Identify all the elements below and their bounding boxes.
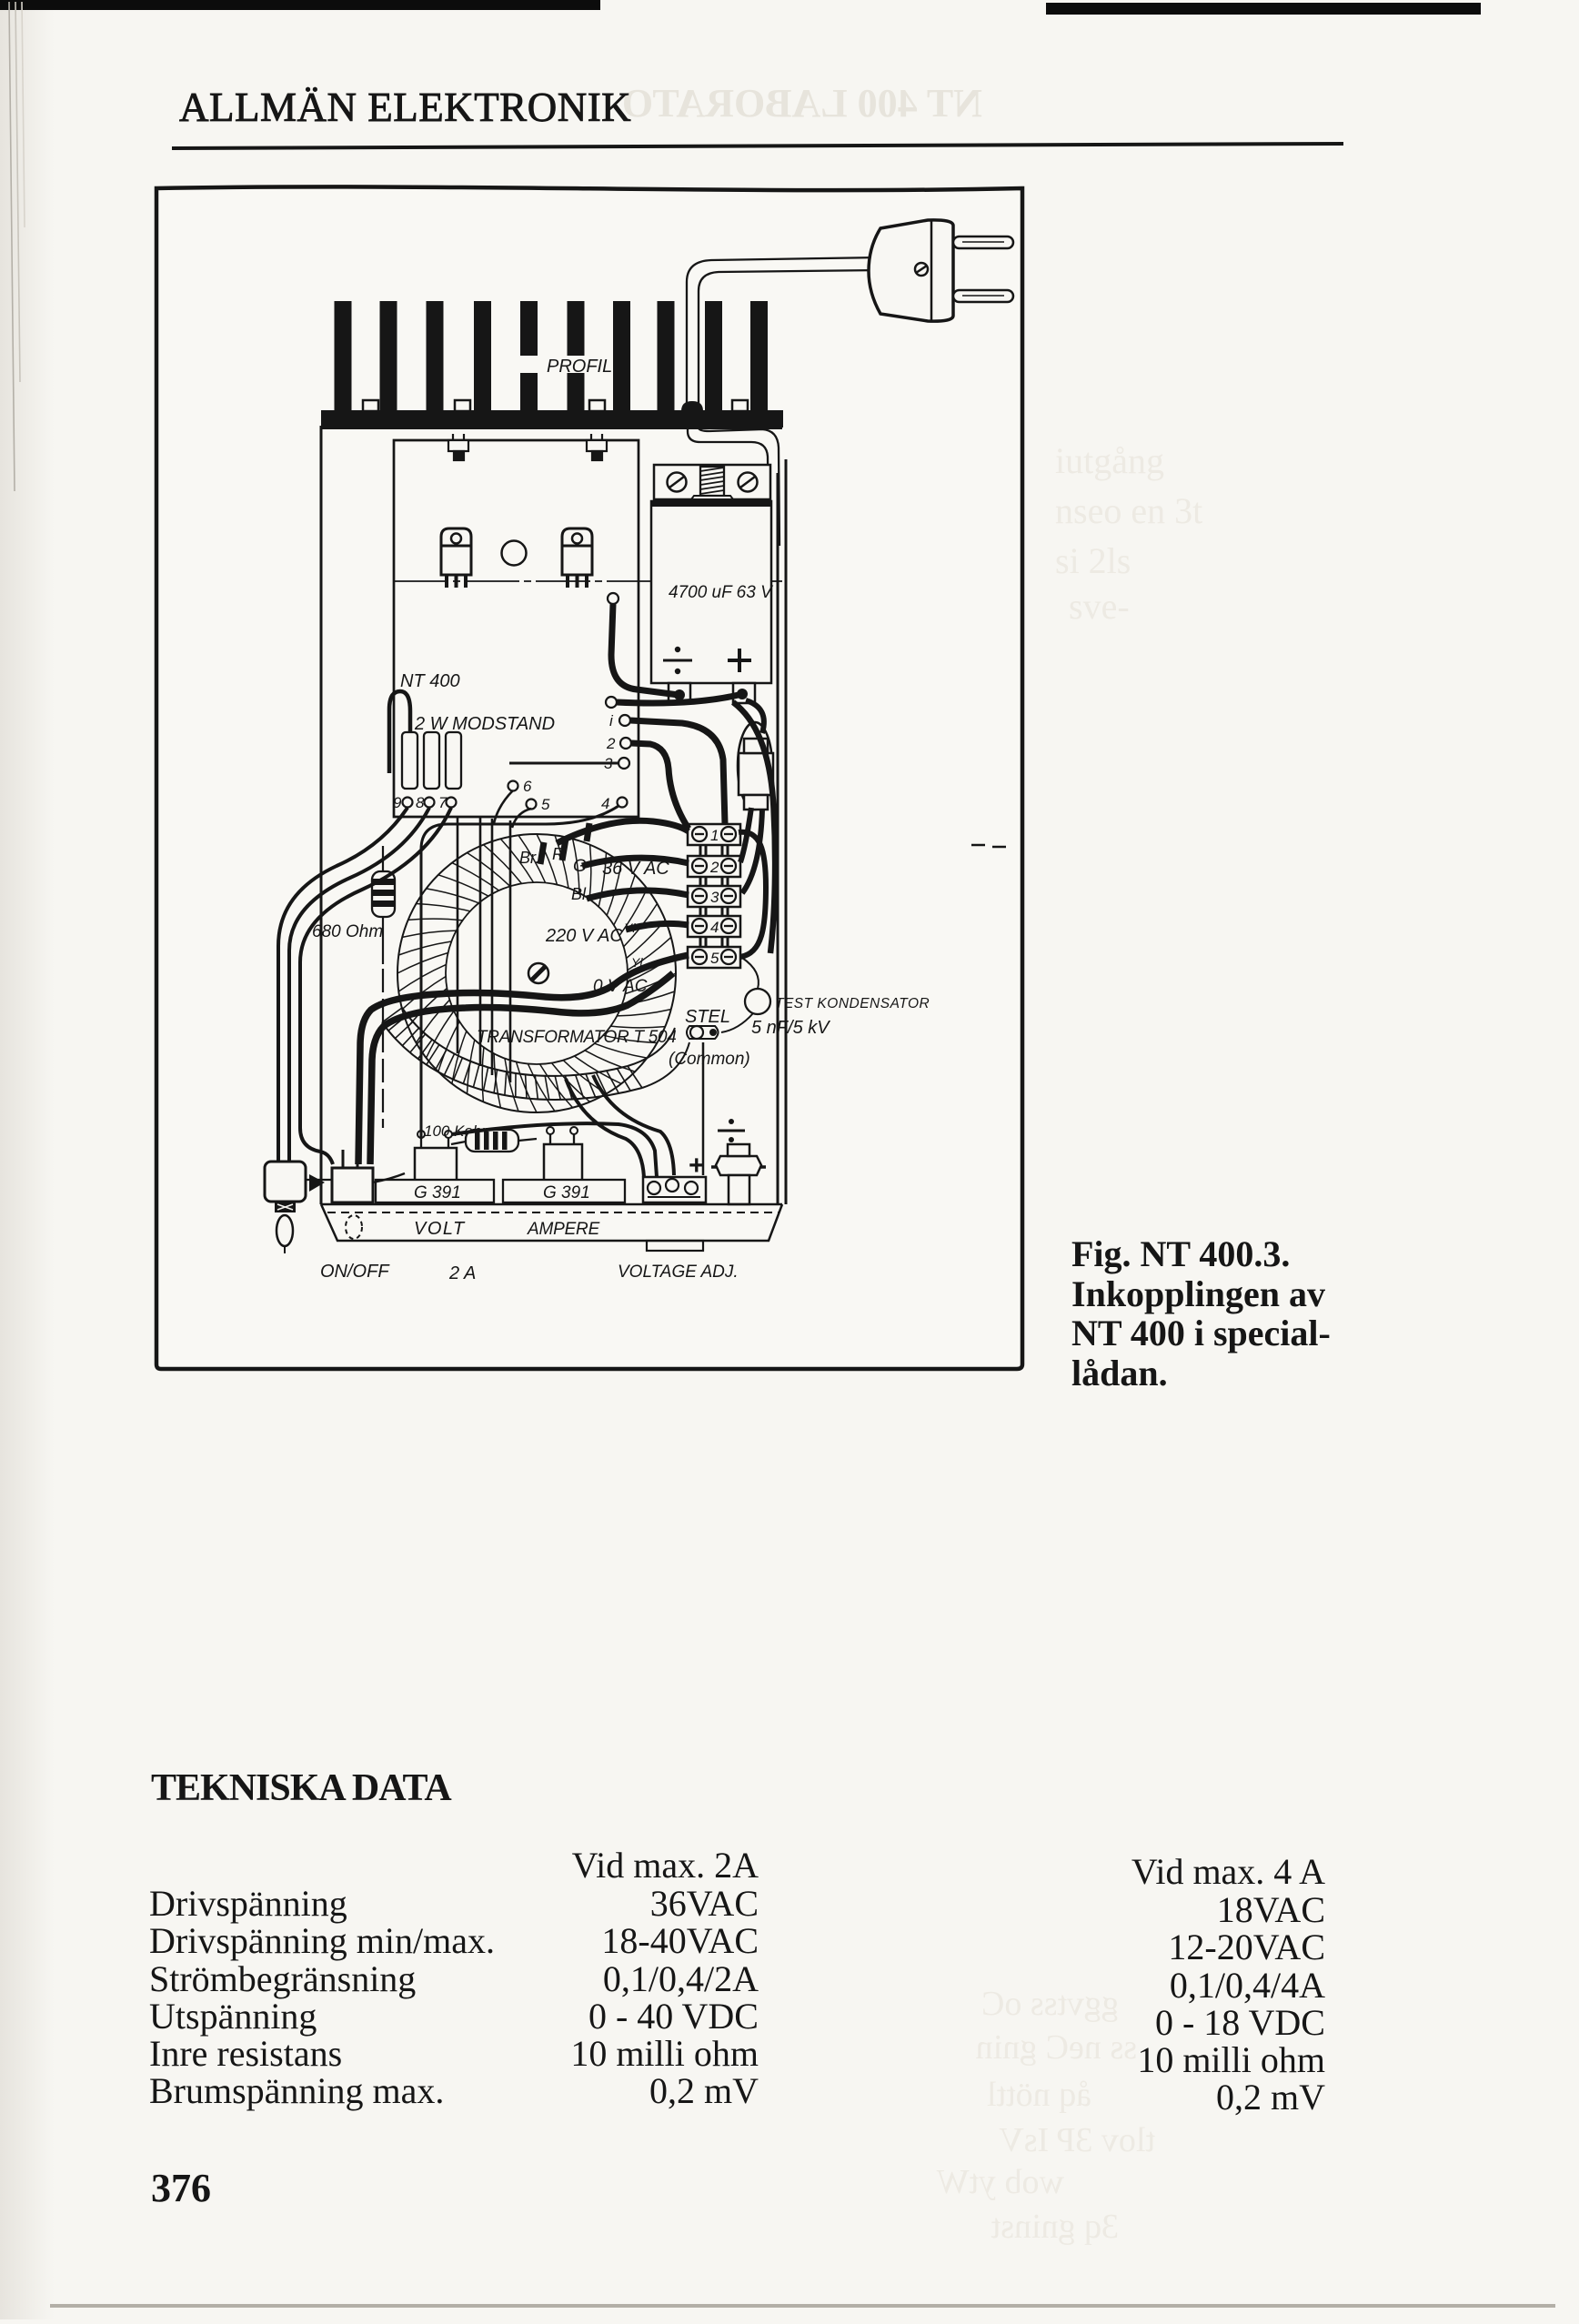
- svg-text:Br.: Br.: [519, 849, 539, 867]
- svg-text:18-40VAC: 18-40VAC: [601, 1920, 759, 1961]
- svg-text:G 391: G 391: [543, 1183, 590, 1202]
- svg-text:Strömbegränsning: Strömbegränsning: [149, 1958, 416, 1999]
- svg-text:iutgång: iutgång: [1055, 440, 1164, 481]
- svg-text:Vid max. 2A: Vid max. 2A: [572, 1845, 759, 1886]
- svg-text:Bl.: Bl.: [571, 885, 590, 903]
- svg-text:2: 2: [709, 859, 719, 876]
- svg-text:0,2 mV: 0,2 mV: [649, 2070, 759, 2111]
- svg-text:+: +: [689, 1151, 705, 1181]
- svg-text:(Common): (Common): [669, 1050, 750, 1069]
- svg-text:6: 6: [523, 778, 532, 795]
- svg-text:5 nF/5 kV: 5 nF/5 kV: [751, 1018, 830, 1038]
- svg-text:0,2 mV: 0,2 mV: [1216, 2077, 1325, 2118]
- svg-text:220 V AC: 220 V AC: [545, 926, 623, 946]
- svg-text:Vid max. 4 A: Vid max. 4 A: [1131, 1851, 1325, 1892]
- svg-text:376: 376: [151, 2166, 211, 2210]
- svg-text:2 W MODSTAND: 2 W MODSTAND: [414, 714, 555, 734]
- svg-text:G: G: [573, 857, 587, 876]
- svg-text:2: 2: [606, 735, 616, 752]
- svg-text:2 A: 2 A: [448, 1263, 476, 1283]
- svg-text:5: 5: [541, 796, 550, 813]
- svg-text:ss neC gnin: ss neC gnin: [976, 2028, 1137, 2067]
- svg-text:ON/OFF: ON/OFF: [320, 1262, 390, 1282]
- svg-text:3q gninst: 3q gninst: [991, 2208, 1119, 2246]
- svg-text:R: R: [552, 845, 564, 863]
- svg-text:lådan.: lådan.: [1071, 1353, 1168, 1393]
- svg-text:18VAC: 18VAC: [1217, 1889, 1325, 1930]
- svg-text:NT 400 i special-: NT 400 i special-: [1071, 1313, 1331, 1353]
- svg-text:ggvtss oC: ggvtss oC: [981, 1985, 1119, 2023]
- svg-text:VOLT: VOLT: [414, 1219, 466, 1239]
- svg-text:0 - 18 VDC: 0 - 18 VDC: [1155, 2002, 1325, 2043]
- svg-text:si 2ls: si 2ls: [1055, 540, 1131, 581]
- svg-text:PROFIL: PROFIL: [547, 357, 612, 377]
- svg-text:10 milli ohm: 10 milli ohm: [1137, 2039, 1325, 2080]
- svg-text:wob ytW: wob ytW: [937, 2163, 1065, 2201]
- svg-text:nseo en 3t: nseo en 3t: [1055, 490, 1202, 531]
- svg-text:TEST KONDENSATOR: TEST KONDENSATOR: [775, 996, 930, 1011]
- svg-text:tlov 3P IsV: tlov 3P IsV: [999, 2121, 1155, 2159]
- svg-text:1: 1: [710, 827, 719, 844]
- svg-text:4: 4: [601, 795, 609, 812]
- svg-text:sve-: sve-: [1069, 586, 1130, 627]
- svg-text:ALLMÄN ELEKTRONIK: ALLMÄN ELEKTRONIK: [179, 85, 631, 130]
- svg-text:0,1/0,4/2A: 0,1/0,4/2A: [603, 1958, 759, 1999]
- svg-text:Drivspänning min/max.: Drivspänning min/max.: [149, 1920, 495, 1961]
- svg-text:Yl: Yl: [631, 955, 643, 970]
- svg-text:680 Ohm: 680 Ohm: [312, 922, 383, 941]
- svg-text:Drivspänning: Drivspänning: [149, 1883, 347, 1924]
- svg-text:10 milli ohm: 10 milli ohm: [570, 2033, 759, 2074]
- svg-text:AMPERE: AMPERE: [527, 1220, 600, 1239]
- svg-text:G 391: G 391: [414, 1183, 461, 1202]
- svg-text:3: 3: [710, 889, 719, 906]
- svg-text:0 - 40 VDC: 0 - 40 VDC: [588, 1996, 759, 2037]
- svg-text:36 V AC: 36 V AC: [602, 859, 669, 879]
- svg-text:VOLTAGE ADJ.: VOLTAGE ADJ.: [618, 1263, 739, 1282]
- svg-text:4: 4: [710, 919, 719, 936]
- svg-text:NT 400 LABORATO: NT 400 LABORATO: [622, 81, 982, 126]
- svg-text:TRANSFORMATOR T 504: TRANSFORMATOR T 504: [477, 1028, 677, 1047]
- svg-text:Yl: Yl: [624, 921, 636, 935]
- svg-text:0,1/0,4/4A: 0,1/0,4/4A: [1170, 1965, 1325, 2006]
- svg-text:9: 9: [393, 794, 402, 811]
- svg-text:5: 5: [710, 950, 719, 967]
- svg-text:åq nöttl: åq nöttl: [987, 2076, 1091, 2114]
- svg-text:4700 uF 63 V: 4700 uF 63 V: [669, 583, 774, 602]
- svg-text:Fig. NT 400.3.: Fig. NT 400.3.: [1071, 1233, 1290, 1274]
- svg-text:0 V AC: 0 V AC: [593, 977, 648, 996]
- svg-text:Inkopplingen av: Inkopplingen av: [1071, 1273, 1325, 1314]
- svg-text:TEKNISKA DATA: TEKNISKA DATA: [151, 1767, 452, 1809]
- svg-text:Utspänning: Utspänning: [149, 1996, 317, 2037]
- svg-text:Inre resistans: Inre resistans: [149, 2033, 342, 2074]
- svg-text:STEL: STEL: [685, 1007, 730, 1027]
- svg-text:12-20VAC: 12-20VAC: [1168, 1927, 1325, 1967]
- svg-text:Brumspänning max.: Brumspänning max.: [149, 2070, 444, 2111]
- svg-text:NT 400: NT 400: [400, 671, 460, 691]
- svg-text:36VAC: 36VAC: [650, 1883, 759, 1924]
